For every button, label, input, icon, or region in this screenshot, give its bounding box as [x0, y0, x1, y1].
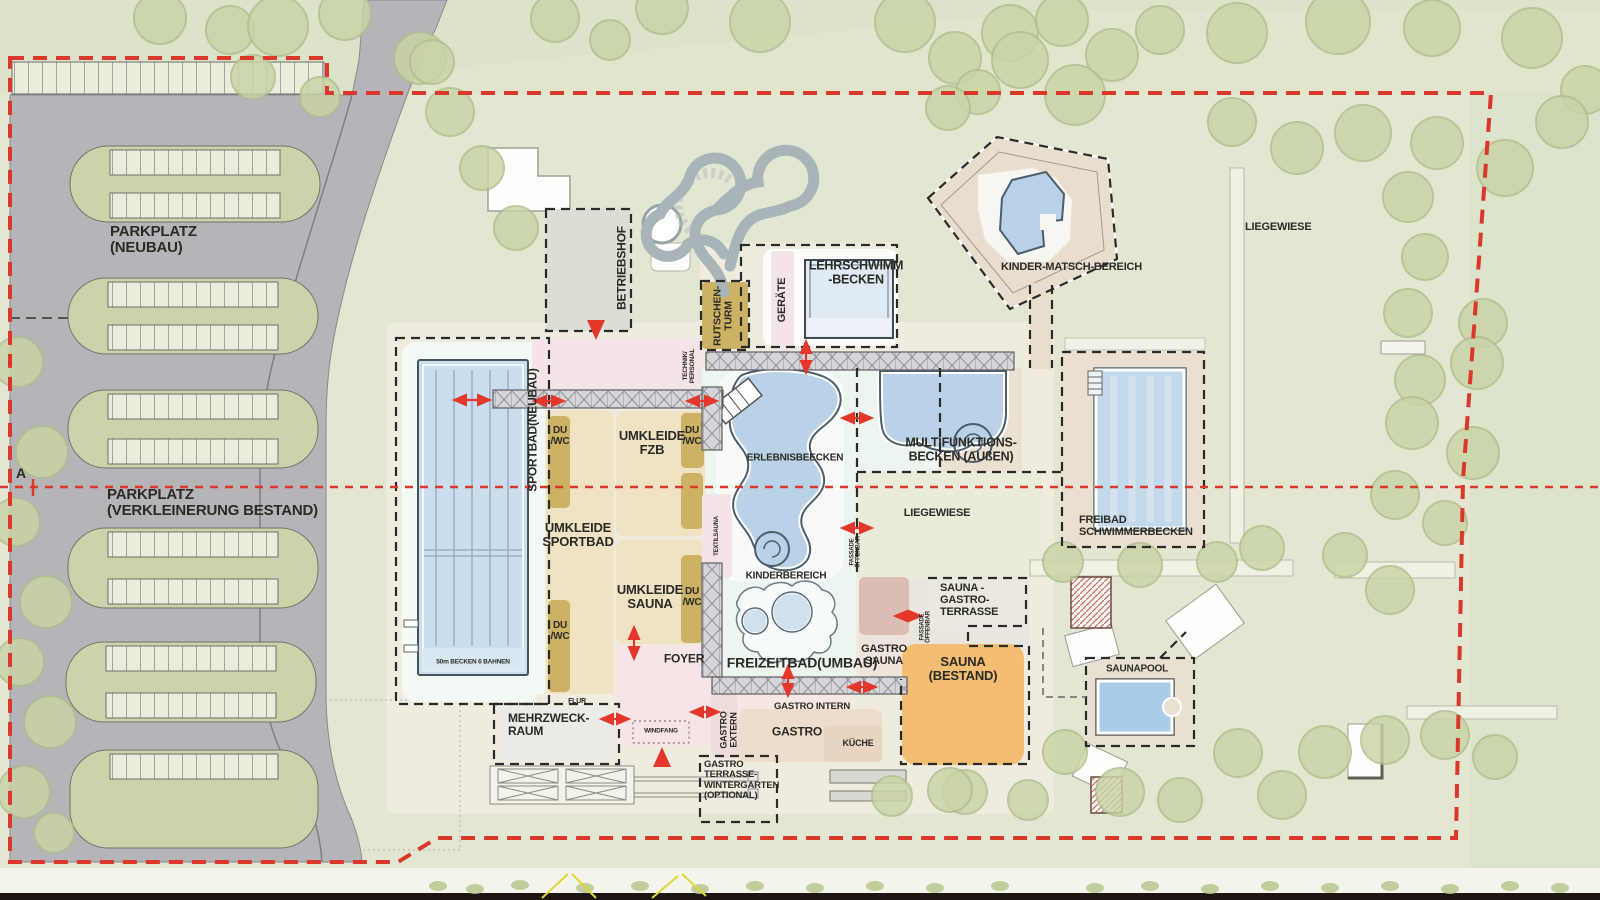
tree	[1096, 768, 1144, 816]
tree	[1366, 566, 1414, 614]
bush	[926, 883, 944, 893]
parking-stall-row	[106, 693, 276, 718]
parking-stall-row	[108, 532, 278, 557]
block-du-wc-box-2	[548, 600, 570, 692]
parking-stall-row	[108, 282, 278, 307]
parking-stall-row	[108, 325, 278, 350]
bush	[1551, 883, 1569, 893]
saunapool-pool	[1096, 679, 1181, 735]
site-plan: PARKPLATZ (NEUBAU)PARKPLATZ (VERKLEINERU…	[0, 0, 1600, 900]
bush	[466, 884, 484, 894]
tree	[872, 776, 912, 816]
tree	[875, 0, 935, 52]
bush	[1201, 884, 1219, 894]
bush	[1086, 883, 1104, 893]
block-sauna-bestand-block	[902, 644, 1024, 765]
tree	[531, 0, 579, 42]
bush	[991, 881, 1009, 891]
tree	[426, 88, 474, 136]
bush	[1501, 881, 1519, 891]
tree	[1536, 96, 1588, 148]
tree	[1036, 0, 1088, 46]
tree	[590, 20, 630, 60]
parking-stall-row	[108, 394, 278, 419]
tree	[0, 498, 40, 546]
tree	[300, 77, 340, 117]
tree	[1271, 122, 1323, 174]
block-technik-strip	[532, 338, 702, 390]
tree	[460, 146, 504, 190]
tree	[494, 206, 538, 250]
parking-stall-row	[108, 579, 278, 604]
tree	[1421, 711, 1469, 759]
tree	[1411, 117, 1463, 169]
tree	[1258, 771, 1306, 819]
block-gastro-sauna-top	[859, 577, 909, 635]
tree	[1323, 533, 1367, 577]
tree	[1473, 735, 1517, 779]
block-du-wc-box-1	[548, 416, 570, 508]
parking-stall-row	[110, 193, 280, 218]
tree	[1207, 3, 1267, 63]
parking-stall-row	[108, 439, 278, 464]
block-sauna-terrasse-box	[927, 578, 1026, 630]
block-du-wc-box-4	[681, 473, 703, 529]
block-liege-bank	[1381, 341, 1425, 354]
block-geraete-strip	[771, 251, 794, 350]
tree	[1214, 729, 1262, 777]
tree	[1208, 98, 1256, 146]
bush	[1381, 881, 1399, 891]
tree	[16, 426, 68, 478]
tree	[1371, 471, 1419, 519]
tree	[231, 55, 275, 99]
kinderbereich-pools	[737, 581, 838, 662]
tree	[1404, 0, 1460, 56]
tree	[410, 40, 454, 84]
tree	[1306, 0, 1370, 54]
bush	[1141, 881, 1159, 891]
tree	[1043, 542, 1083, 582]
tree	[20, 576, 72, 628]
tree	[134, 0, 186, 44]
tree	[0, 337, 43, 387]
bush	[511, 880, 529, 890]
tree	[0, 766, 50, 818]
block-du-wc-box-3	[681, 413, 704, 468]
parking-stall-row	[110, 150, 280, 175]
tree	[248, 0, 308, 56]
tree	[24, 696, 76, 748]
tree	[1008, 780, 1048, 820]
bush	[866, 881, 884, 891]
tree	[1386, 397, 1438, 449]
tree	[1447, 427, 1499, 479]
block-du-wc-box-5	[681, 555, 703, 643]
tree	[206, 6, 254, 54]
block-mehrzweck-block	[500, 707, 613, 761]
tree	[1402, 234, 1448, 280]
block-betriebshof-hof	[546, 209, 631, 331]
tree	[1335, 105, 1391, 161]
tree	[1451, 337, 1503, 389]
tree	[0, 638, 44, 686]
parking-stall-row	[110, 754, 278, 779]
bush	[1321, 883, 1339, 893]
tree	[1299, 726, 1351, 778]
tree	[928, 768, 972, 812]
tree	[1240, 526, 1284, 570]
tree	[1384, 289, 1432, 337]
bush	[1441, 884, 1459, 894]
tree	[730, 0, 790, 52]
bush	[806, 883, 824, 893]
tree	[1502, 8, 1562, 68]
bush	[1261, 881, 1279, 891]
block-foyer-block	[616, 646, 711, 746]
lehrschwimmbecken-pool	[805, 260, 893, 338]
tree	[1361, 716, 1409, 764]
tree	[34, 813, 74, 853]
tree	[1158, 778, 1202, 822]
freibad-pool	[1088, 368, 1186, 530]
tree	[1045, 65, 1105, 125]
block-kueche-block	[824, 726, 882, 762]
plan-canvas	[0, 0, 1600, 900]
bush	[746, 881, 764, 891]
parking-stall-row	[106, 646, 276, 671]
tree	[1136, 6, 1184, 54]
tree	[1118, 543, 1162, 587]
tree	[992, 32, 1048, 88]
bush	[429, 881, 447, 891]
tree	[1383, 172, 1433, 222]
bush	[631, 881, 649, 891]
tree	[1043, 730, 1087, 774]
